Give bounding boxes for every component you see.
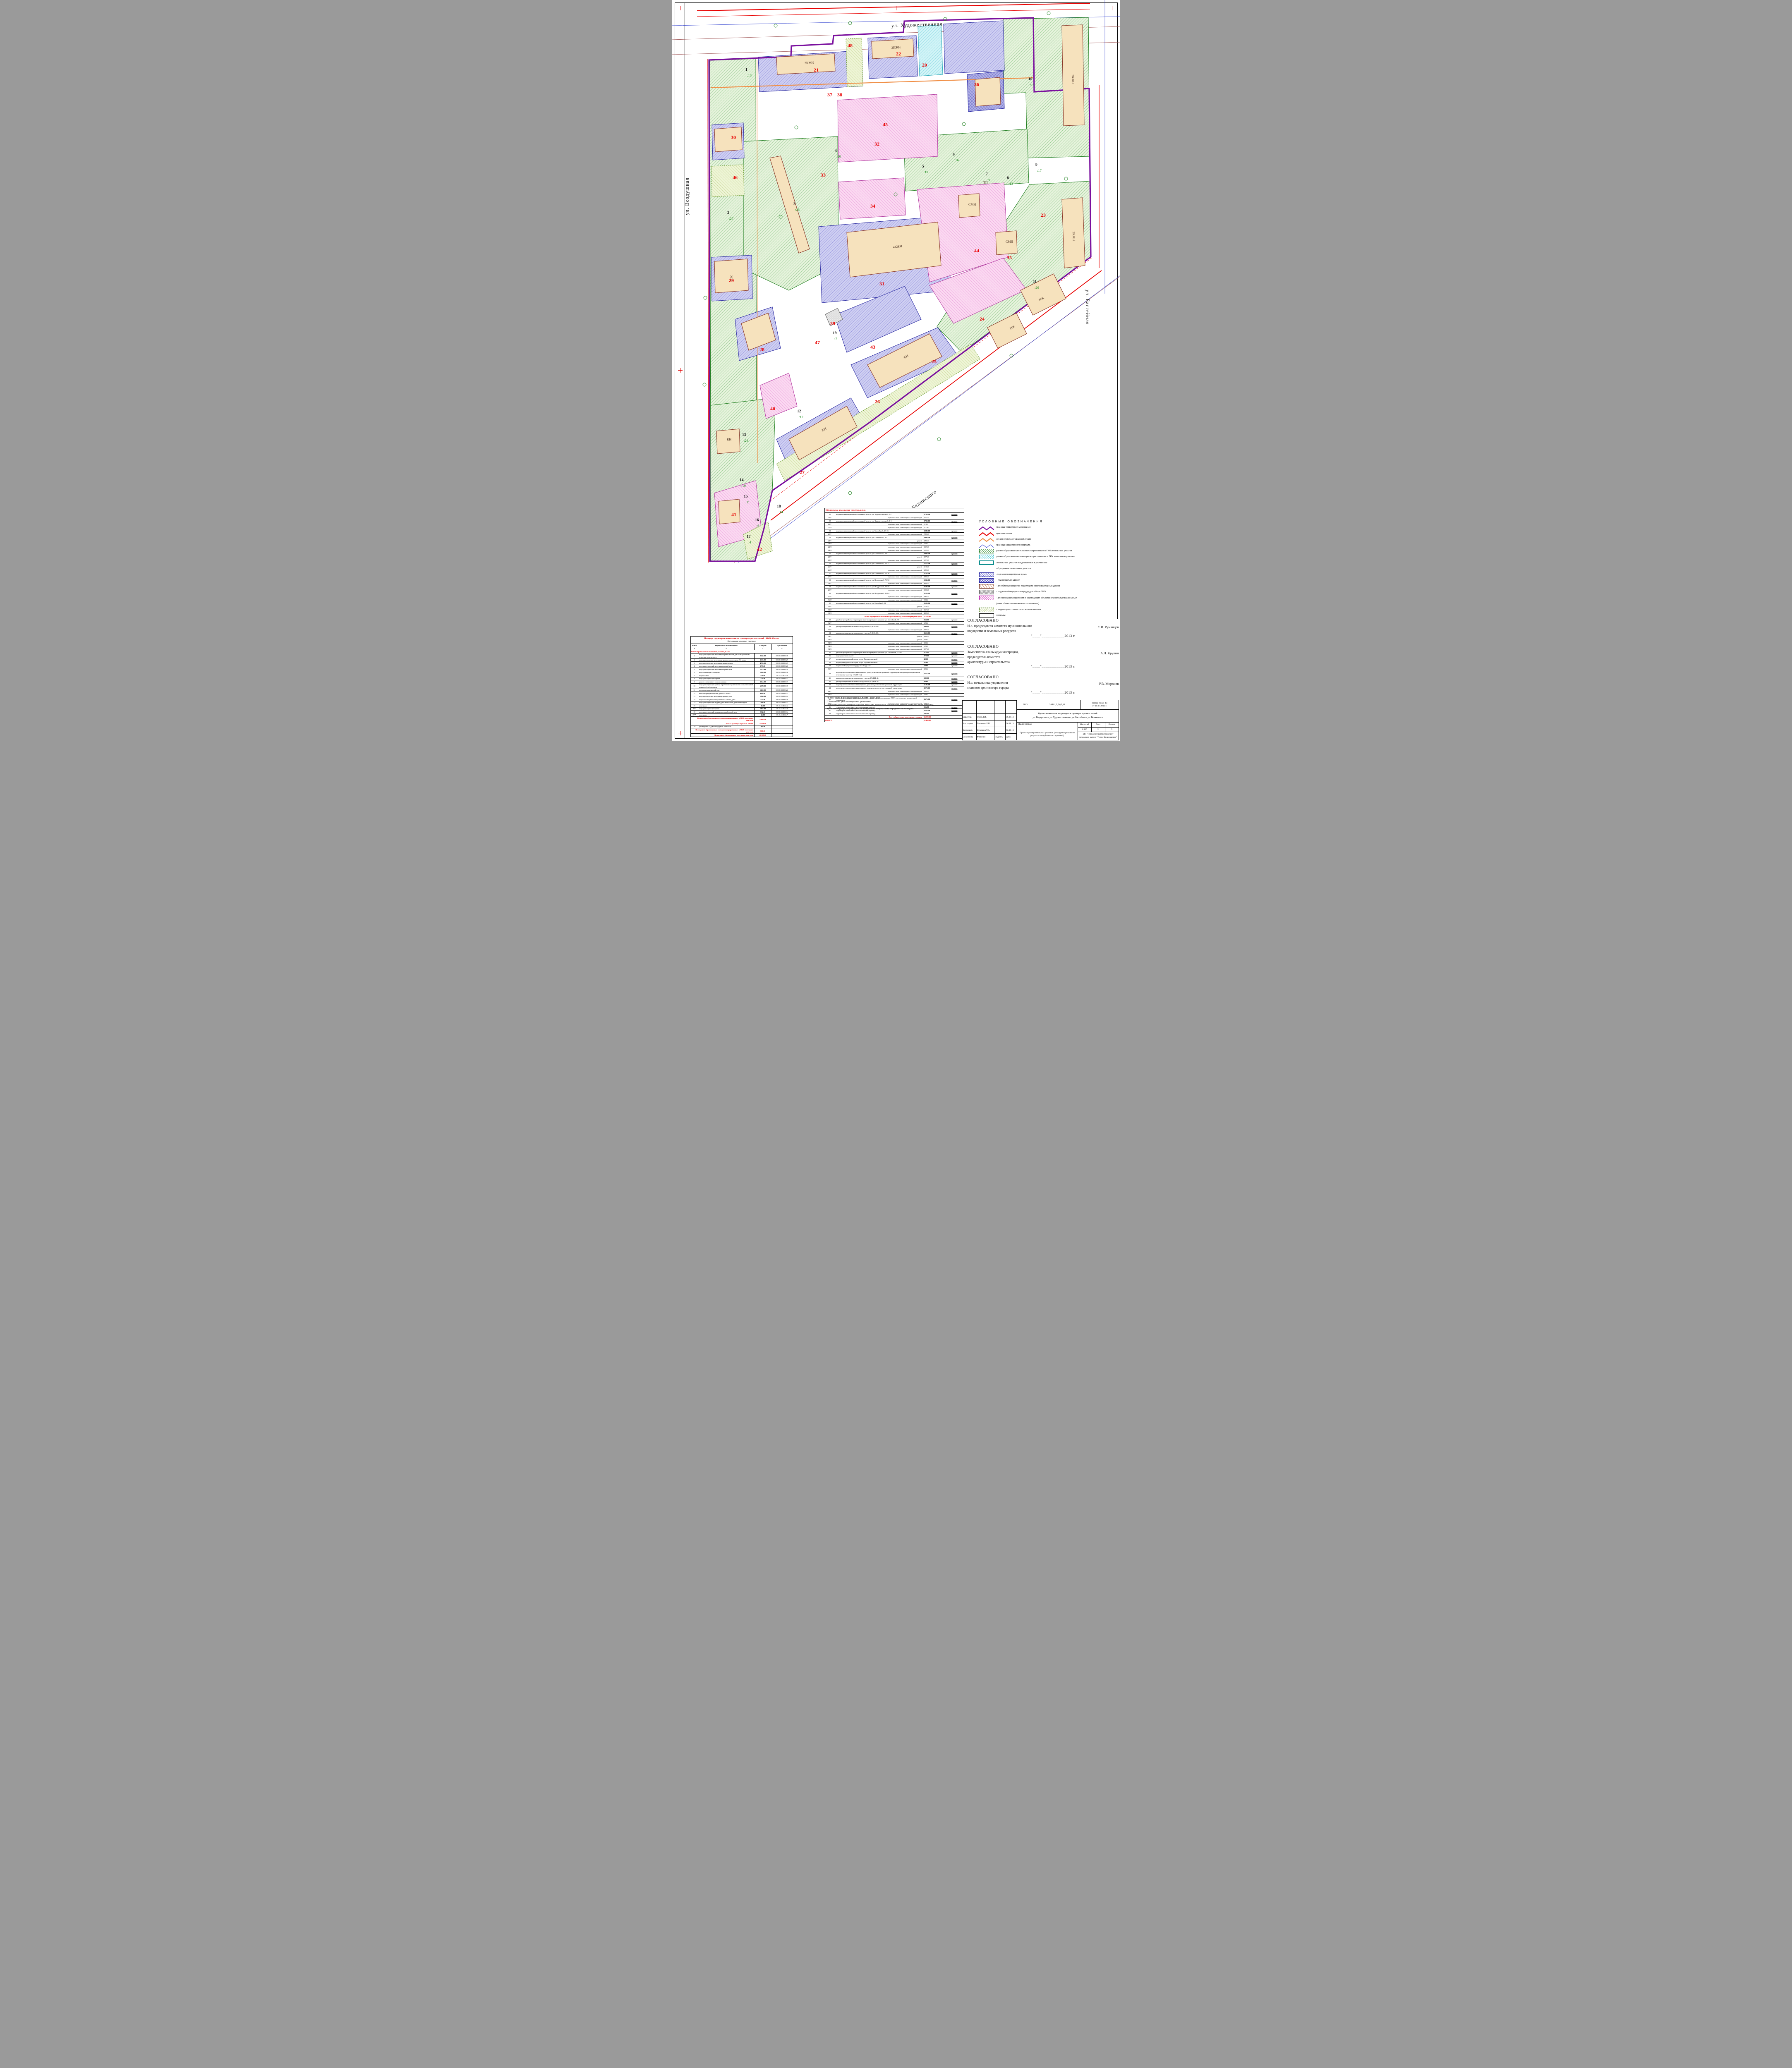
col-header: № п/п xyxy=(690,644,698,647)
cell: проект xyxy=(945,677,964,680)
cell: 28 xyxy=(824,579,835,582)
total-row: в т.ч. в границах красных линий:25428.00 xyxy=(690,722,793,725)
legend-label: ранее образованные и незарегистрированны… xyxy=(997,555,1075,558)
parcel-row: 10под существующие здания, строения и ст… xyxy=(690,683,793,689)
cell: Фамилия xyxy=(976,734,994,740)
organization-name: МП "Городской центр геодезии" городского… xyxy=(1078,732,1119,740)
legend-swatch-zig-red xyxy=(979,531,994,536)
approval-block: СОГЛАСОВАНОИ.о. председателя комитета му… xyxy=(968,619,1119,638)
parcel-row: 19**под гараж32.0039:15:110833:7 xyxy=(690,713,793,717)
parcel-row: 22под многоквартирный малоэтажный дом по… xyxy=(824,519,964,523)
col-header: Разрешенное использование xyxy=(698,644,755,647)
cell: 221.00 xyxy=(923,559,945,562)
cell: 700.00 xyxy=(754,725,771,728)
cell: проект xyxy=(945,661,964,664)
legend-label: ранее образованные и зарегистрированные … xyxy=(997,550,1072,552)
formed-parcel-number: 26 xyxy=(875,399,880,405)
cell: 30/1 xyxy=(824,595,835,598)
cadastral-suffix: :14 xyxy=(779,510,783,514)
building-label: СМН xyxy=(968,203,976,206)
legend-swatch-box-brown xyxy=(979,584,994,589)
sub-row: 25/1проезд197.00 xyxy=(824,555,964,559)
cell: 06.08.13 xyxy=(1006,720,1016,727)
legend-item: земельные участки предлагаемые к уточнен… xyxy=(979,560,1116,565)
cell xyxy=(945,526,964,529)
cell: под многоквартирный малоэтажный дом по у… xyxy=(835,552,923,555)
cell: охранная зона инженерных коммуникаций xyxy=(835,645,923,648)
signature-row xyxy=(962,701,1016,707)
cell: Директор xyxy=(962,714,976,720)
cell: охранная зона инженерных коммуникаций xyxy=(835,628,923,632)
cell: 35.00 xyxy=(923,598,945,602)
cadastral-suffix: :26 xyxy=(1035,285,1039,290)
cell: 152.00 xyxy=(923,546,945,549)
cell: проект xyxy=(945,671,964,677)
cell xyxy=(945,569,964,572)
parcel-row: 23под многоквартирный малоэтажный дом по… xyxy=(824,529,964,533)
cell: многоквартирные жилые дома 2-4 этажа xyxy=(698,692,755,695)
cell: 23/1 xyxy=(824,533,835,536)
cell: под здание котельной xyxy=(835,654,923,658)
cell: 40 xyxy=(824,671,835,677)
expl-colnum-row: 1 2 3 4 xyxy=(690,647,793,650)
formed-parcel-number: 22 xyxy=(896,51,901,57)
cell: под существующий индивидуальный жилой до… xyxy=(698,711,755,714)
sub-row: 29/1охранная зона инженерных коммуникаци… xyxy=(824,589,964,592)
zone-parcel-45-pink xyxy=(838,94,938,162)
cell: 15.00 xyxy=(923,641,945,645)
sub-row: 22/1охранная зона инженерных коммуникаци… xyxy=(824,523,964,526)
cell: 39:15:110833:17 xyxy=(771,680,793,684)
parcel-row: 33для присоединения к земельному участку… xyxy=(824,625,964,628)
cell: под многоквартирный малоэтажный дом по у… xyxy=(835,519,923,523)
scale-value: 1:500 xyxy=(1078,728,1091,732)
cell: под существующий индивидуальный жилой до… xyxy=(698,701,755,704)
cell: охранная зона инженерных коммуникаций xyxy=(835,641,923,645)
cell: под гараж xyxy=(698,713,755,717)
cell: 39:15:110833:7 xyxy=(771,713,793,717)
cell: 214.00 xyxy=(754,677,771,680)
cell: 25428.00 xyxy=(754,722,771,725)
cell: проект xyxy=(945,625,964,628)
formed-parcel-number: 45 xyxy=(883,122,888,127)
zone-parcel-34-pink xyxy=(839,178,906,219)
formed-parcel-number: 23 xyxy=(1041,212,1046,218)
cell: 1720.00 xyxy=(923,513,945,516)
cell: 282.00 xyxy=(923,677,945,680)
cell: 1290.00 xyxy=(754,695,771,698)
cell: 41 xyxy=(824,677,835,680)
cell: 29.00 xyxy=(923,664,945,668)
cell: 24/1 xyxy=(824,539,835,543)
cell: 22/2 xyxy=(824,526,835,529)
cell: 1164.00 xyxy=(754,680,771,684)
code-cell: 34-Б-1,2,5,6,9,10 xyxy=(1034,700,1081,709)
expl-table-subtitle: Экспликация земельных участков xyxy=(690,640,793,644)
cell: 9 xyxy=(690,680,698,684)
cell: 789.00 xyxy=(923,533,945,536)
cell: 48 xyxy=(824,712,835,716)
total-row: Всего ранее образованных и незарегистрир… xyxy=(690,728,793,734)
cell: под многоквартирный малоэтажный дом по у… xyxy=(835,572,923,575)
legend-label: - для благоустройства территории многокв… xyxy=(997,585,1060,587)
request-date: от 19.07.2013 г. xyxy=(1092,705,1107,708)
legend-item: ранее образованные и зарегистрированные … xyxy=(979,549,1116,553)
cell: 39:15:110833:4 xyxy=(771,707,793,711)
cell xyxy=(994,701,1005,707)
legend-spacer xyxy=(979,566,994,571)
cell: 2080.00 xyxy=(923,529,945,533)
parcel-row: 41для присоединения к земельному участку… xyxy=(824,677,964,680)
cell: проект xyxy=(945,602,964,605)
cell: Нач.отдела xyxy=(962,720,976,727)
cell xyxy=(945,589,964,592)
cell: 15 xyxy=(690,701,698,704)
building-label: 2КЖН xyxy=(891,45,901,50)
cell xyxy=(994,720,1005,727)
cell: 396.00 xyxy=(923,595,945,598)
legend-label: земельные участки предлагаемые к уточнен… xyxy=(997,562,1047,564)
parcel-row: 21под многоквартирный малоэтажный дом по… xyxy=(824,513,964,516)
cell: 117.00 xyxy=(923,526,945,529)
cell: под многоквартирный малоэтажный дом по у… xyxy=(835,562,923,565)
cell: 108.00 xyxy=(923,635,945,638)
existing-parcel-number: 5 xyxy=(922,165,924,169)
cadastral-suffix: :27 xyxy=(729,216,733,220)
legend-item: граница кадастрового квартала xyxy=(979,543,1116,548)
cell: 34/3 xyxy=(824,641,835,645)
formed-parcel-number: 35 xyxy=(1007,255,1012,261)
cell xyxy=(945,549,964,552)
cell: 1 xyxy=(690,653,698,658)
cadastral-suffix: :24 xyxy=(744,438,749,443)
sub-row: 34/5охранная зона инженерных коммуникаци… xyxy=(824,648,964,651)
red-line-top-2 xyxy=(697,9,1090,17)
legend-item: - под нежилые здания xyxy=(979,578,1116,583)
signature-row: КартографКузьмина Т.А.06.08.13 xyxy=(962,727,1016,734)
total-row: Всего образуемых земельных участков под … xyxy=(824,615,964,618)
formed-parcel-number: 43 xyxy=(870,344,875,350)
cell: под многоквартирный дом xyxy=(698,689,755,692)
cell: 2275.00 xyxy=(923,562,945,565)
cell: дороги совместного использования xyxy=(698,680,755,684)
sub-row: 31/1проезд274.00 xyxy=(824,605,964,608)
parcel-row: 43под строительство многоквартирного дом… xyxy=(824,683,964,687)
cell: охранная зона инженерных коммуникаций xyxy=(835,559,923,562)
parcel-row: 6под спортивную площадку1436.0039:15:110… xyxy=(690,671,793,674)
cell: 39:15:110833:11 xyxy=(771,701,793,704)
cell: проезд xyxy=(835,555,923,559)
cell: 189.00 xyxy=(923,569,945,572)
legend-item: линия отступа от красной линии xyxy=(979,537,1116,541)
sub-row: 22/2охранная зона инженерных коммуникаци… xyxy=(824,526,964,529)
legend-label: красная линия xyxy=(997,532,1012,535)
red-line-top xyxy=(697,3,1090,11)
cadastral-suffix: :11 xyxy=(745,500,750,504)
cell: 61400.00 xyxy=(923,719,945,722)
explication-table: Площадь территории межевания в в граница… xyxy=(690,636,793,737)
cell: под строительство многоквартирного дома,… xyxy=(835,671,923,677)
legend-label: - под контейнерную площадку для сбора ТБ… xyxy=(997,591,1046,593)
cell: 14 xyxy=(690,698,698,701)
cell: проект xyxy=(945,654,964,658)
cell: Всего ранее образованных и незарегистрир… xyxy=(690,728,754,734)
cell xyxy=(1006,707,1016,714)
parcel-row: 39под контейнерную площадку по сбору ТБО… xyxy=(824,664,964,668)
cell: проект xyxy=(945,680,964,683)
formed-table-title: Образуемые земельные участки, в т.ч.: xyxy=(824,508,964,512)
cell xyxy=(945,645,964,648)
cell: 26/2 xyxy=(824,569,835,572)
cell xyxy=(945,628,964,632)
city-cell: г.Калининград xyxy=(1017,723,1078,729)
cell: 38 xyxy=(824,661,835,664)
cell xyxy=(994,714,1005,720)
cell: проект xyxy=(945,632,964,635)
formed-parcel-number: 40 xyxy=(770,406,775,412)
existing-parcel-number: 16 xyxy=(755,518,759,522)
cell: охранная зона инженерных коммуникаций xyxy=(835,668,923,671)
cell: проезд xyxy=(835,638,923,641)
total-row: Всего образуемых земельных участков35272… xyxy=(824,716,964,719)
zone-parcel-40-pink xyxy=(760,373,797,419)
parcel-row: 28под многоквартирный малоэтажный дом по… xyxy=(824,579,964,582)
cell: 20 xyxy=(690,725,698,728)
cadastral-suffix: :7 xyxy=(834,337,837,341)
building-label: 2КЖН xyxy=(804,61,814,65)
project-title-line1: Проект межевания территории в границах к… xyxy=(1038,712,1097,716)
cell: 30 xyxy=(824,592,835,595)
cell xyxy=(1006,701,1016,707)
total-row: ИТОГО61400.00 xyxy=(824,719,964,722)
formed-parcel-number: 32 xyxy=(874,141,879,147)
cell: под существующие гаражи xyxy=(698,677,755,680)
territory-map: ул. Художественнаяул. Воздушнаяул. Бассе… xyxy=(672,0,1120,562)
cell: 116.00 xyxy=(754,674,771,677)
cell: охранная зона инженерных коммуникаций xyxy=(835,516,923,519)
footnote: *В том числе в границах красных линий - … xyxy=(827,697,959,700)
existing-parcel-number: 10 xyxy=(1028,77,1033,81)
cell: охранная зона инженерных коммуникаций xyxy=(835,690,923,693)
approvals: СОГЛАСОВАНОИ.о. председателя комитета му… xyxy=(968,619,1119,701)
legend-label: (зона общественно-жилого назначения) xyxy=(997,603,1040,605)
sub-row: 24/1проезд180.00 xyxy=(824,539,964,543)
formed-parcel-number: 28 xyxy=(759,347,764,352)
parcel-row: 25под многоквартирный малоэтажный дом по… xyxy=(824,552,964,555)
cell: 39/1 xyxy=(824,668,835,671)
project-title: Проект межевания территории в границах к… xyxy=(1017,710,1119,723)
legend-item: -под многоквартирные дома xyxy=(979,572,1116,577)
request-number: Заявка 06925-13 xyxy=(1092,702,1107,705)
formed-parcel-number: 21 xyxy=(814,67,819,73)
cell: 33 xyxy=(824,625,835,628)
sheet-label: Лист xyxy=(1092,723,1105,728)
cell xyxy=(945,641,964,645)
cell: под многоквартирный малоэтажный дом по у… xyxy=(835,602,923,605)
building-label: 2КЖН xyxy=(1072,232,1076,241)
cell: охранная зона инженерных коммуникаций xyxy=(835,526,923,529)
signature-row: ДолжностьФамилияПодписьДата xyxy=(962,734,1016,740)
cell: под строительство многоквартирного жилог… xyxy=(698,658,755,662)
cell xyxy=(945,668,964,671)
parcel-row: 14под блок секцию блокированного жилого … xyxy=(690,698,793,701)
parcel-row: 1под существующий многоквартирный жилой … xyxy=(690,653,793,658)
cell: 93.00 xyxy=(923,693,945,697)
cell xyxy=(945,565,964,569)
scale-label: Масштаб xyxy=(1078,723,1091,728)
cell: Подпись xyxy=(994,734,1005,740)
cell xyxy=(945,719,964,722)
cell: 505.00 xyxy=(923,690,945,693)
cell xyxy=(976,701,994,707)
approval-role: И.о. председателя комитета муниципальног… xyxy=(968,624,1032,634)
cell: проект xyxy=(945,513,964,516)
cell: под существующее здание xyxy=(698,707,755,711)
cell: 16 xyxy=(690,704,698,708)
cell: 06.08.13 xyxy=(1006,727,1016,734)
approval-date-line: "____"____________2013 г. xyxy=(1031,634,1119,638)
cadastral-suffix: :10 xyxy=(741,483,746,488)
cell: 06.08.13 xyxy=(1006,714,1016,720)
cell: 13 xyxy=(690,695,698,698)
cell: охранная зона инженерных коммуникаций xyxy=(835,569,923,572)
existing-parcel-number: 3 xyxy=(793,202,795,206)
sub-row: 30/1охранная зона инженерных коммуникаци… xyxy=(824,595,964,598)
formed-parcel-number: 39 xyxy=(830,321,835,326)
cell: под ТП - 629 xyxy=(698,674,755,677)
legend-swatch-box-green xyxy=(979,549,994,553)
cell: 34 xyxy=(824,632,835,635)
cell xyxy=(945,622,964,625)
cell: под индивидуальный гараж по ул. Художест… xyxy=(835,661,923,664)
street-label: ул. Бассейная xyxy=(1085,290,1090,325)
cell: ИТОГО xyxy=(824,719,923,722)
approval-signer-name: Р.В. Миронов xyxy=(1099,680,1119,690)
cell: 388.00 xyxy=(754,701,771,704)
legend: УСЛОВНЫЕ ОБОЗНАЧЕНИЯ граница территории … xyxy=(979,520,1116,625)
cell: охранная зона инженерных коммуникаций xyxy=(835,693,923,697)
parcel-row: 20для ведения садово-огородного хозяйств… xyxy=(690,725,793,728)
cell: 22/1 xyxy=(824,523,835,526)
cell: 415.00 xyxy=(923,651,945,654)
legend-label: линия отступа от красной линии xyxy=(997,538,1031,541)
sheet-value: 2 xyxy=(1092,728,1105,732)
cell: проезд xyxy=(835,605,923,608)
formed-parcel-number: 37 xyxy=(827,92,832,98)
sub-row: 26/1проезд210.00 xyxy=(824,565,964,569)
cell: для присоединения к земельному участку 5… xyxy=(835,632,923,635)
cell xyxy=(994,707,1005,714)
parcel-row: 32для благоустройства территории многокв… xyxy=(824,618,964,622)
formed-parcel-number: 41 xyxy=(731,512,736,517)
sub-row: 23/1охранная зона инженерных коммуникаци… xyxy=(824,533,964,536)
sub-row: 44/2охранная зона инженерных коммуникаци… xyxy=(824,693,964,697)
cadastral-suffix: :13 xyxy=(1009,182,1013,186)
cell xyxy=(945,516,964,519)
cell: 34/4 xyxy=(824,645,835,648)
cell: 39:15:110833:19 xyxy=(771,668,793,671)
cadastral-suffix: :20 xyxy=(836,154,841,158)
cell: 1790.00 xyxy=(923,519,945,523)
legend-item: - для благоустройства территории многокв… xyxy=(979,584,1116,589)
approval-signer-name: А.Л. Крупин xyxy=(1100,650,1119,665)
approval-date-line: "____"____________2013 г. xyxy=(1031,665,1119,668)
cell: 26/1 xyxy=(824,565,835,569)
building-label: 2КЖН xyxy=(1071,74,1075,84)
formed-parcel-number: 44 xyxy=(974,248,979,254)
cell: 300.00 xyxy=(923,625,945,628)
cell: проект xyxy=(945,687,964,690)
footnotes: *В том числе в границах красных линий - … xyxy=(827,697,959,711)
parcel-row: 42для присоединения к земельному участку… xyxy=(824,680,964,683)
cell: для благоустройства территории многоквар… xyxy=(835,618,923,622)
cell: 2245.00 xyxy=(754,653,771,658)
cell: проект xyxy=(945,536,964,539)
cell: 39:15:110833:10 xyxy=(771,698,793,701)
footnote: При проведении кадастровых работ площадь… xyxy=(827,704,959,707)
cell: 161.00 xyxy=(923,608,945,612)
legend-swatch-box-magenta xyxy=(979,596,994,600)
cell: под блок секцию блокированного жилого до… xyxy=(698,698,755,701)
cell xyxy=(945,539,964,543)
zone-parcel-46-proezd xyxy=(712,165,744,197)
cell xyxy=(771,728,793,734)
project-title-line2: ул. Воздушная - ул. Художественная - ул.… xyxy=(1033,716,1102,720)
cell: 1162.00 xyxy=(923,671,945,677)
cell: 24 xyxy=(824,536,835,539)
cell: охранная зона инженерных коммуникаций xyxy=(835,595,923,598)
cell: 35272.00 xyxy=(923,716,945,719)
cell: 100.00 xyxy=(923,575,945,579)
signature-row xyxy=(962,707,1016,714)
cell: 29 xyxy=(824,585,835,589)
cell xyxy=(945,546,964,549)
cell: для благоустройства территории многоквар… xyxy=(835,651,923,654)
zone-parcel-20-cyan xyxy=(918,25,943,76)
cell: охранная зона инженерных коммуникаций xyxy=(835,523,923,526)
sub-row: 33/1охранная зона инженерных коммуникаци… xyxy=(824,628,964,632)
zone-top-right-lavender xyxy=(944,21,1004,74)
cadastral-suffix: :15 xyxy=(1030,83,1035,87)
parcel-row: 26под многоквартирный малоэтажный дом по… xyxy=(824,562,964,565)
cell: 1530.00 xyxy=(923,585,945,589)
cell: 44/2 xyxy=(824,693,835,697)
cell: под многоквартирный малоэтажный дом по у… xyxy=(835,579,923,582)
footnote: превышающую размер предельно допустимой … xyxy=(827,707,959,711)
legend-swatch-zig-orange xyxy=(979,537,994,541)
parcel-row: 38под индивидуальный гараж по ул. Художе… xyxy=(824,661,964,664)
cell xyxy=(994,727,1005,734)
signature-row: ДиректорГлеза Л.И.06.08.13 xyxy=(962,714,1016,720)
cell: 1350.00 xyxy=(754,689,771,692)
cell: 39:15:110833:26 xyxy=(771,689,793,692)
parcel-row: 40под строительство многоквартирного дом… xyxy=(824,671,964,677)
legend-label: граница кадастрового квартала xyxy=(997,544,1030,546)
cell: 1980.00 xyxy=(923,536,945,539)
request-cell: Заявка 06925-13 от 19.07.2013 г. xyxy=(1081,700,1119,709)
sub-row: 34/4охранная зона инженерных коммуникаци… xyxy=(824,645,964,648)
legend-label: образуемые земельные участки: xyxy=(997,567,1032,570)
approval-heading: СОГЛАСОВАНО xyxy=(968,645,1119,649)
cell: 26128.00 xyxy=(754,734,771,737)
cadastral-suffix: :25 xyxy=(795,208,800,212)
sub-row: 24/4охранная зона инженерных коммуникаци… xyxy=(824,549,964,552)
legend-swatch-box-white xyxy=(979,613,994,618)
cell: проект xyxy=(945,529,964,533)
legend-item: проезды xyxy=(979,613,1116,618)
cell: охранная зона инженерных коммуникаций xyxy=(835,533,923,536)
cell: 24/3 xyxy=(824,546,835,549)
